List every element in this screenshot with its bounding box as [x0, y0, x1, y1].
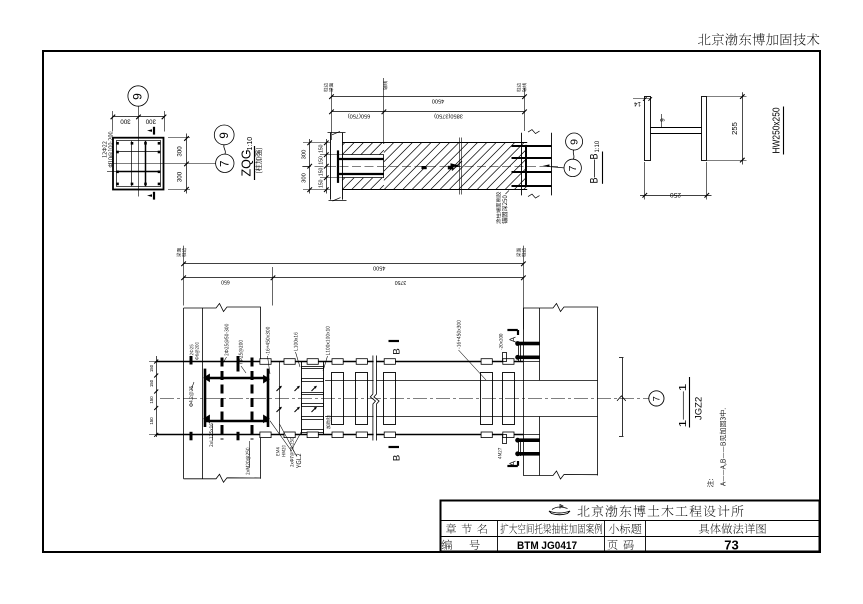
svg-text:A: A — [508, 336, 518, 342]
svg-text:ZQG: ZQG — [240, 149, 254, 176]
svg-text:300: 300 — [177, 146, 184, 157]
svg-text:1:10: 1:10 — [595, 140, 601, 152]
svg-text:250: 250 — [670, 191, 681, 198]
svg-text:9: 9 — [131, 93, 145, 100]
svg-text:9: 9 — [660, 118, 667, 122]
svg-text:1:10: 1:10 — [247, 137, 254, 151]
svg-text:150: 150 — [149, 417, 154, 425]
svg-text:300: 300 — [302, 150, 308, 160]
svg-text:300: 300 — [302, 173, 308, 183]
svg-text:7: 7 — [651, 396, 662, 401]
svg-text:300: 300 — [177, 171, 184, 182]
svg-text:9: 9 — [219, 132, 231, 138]
svg-text:73: 73 — [724, 538, 738, 553]
svg-text:150: 150 — [149, 396, 154, 404]
svg-text:B: B — [391, 455, 402, 461]
svg-text:BTM JG0417: BTM JG0417 — [517, 540, 577, 552]
svg-text:150: 150 — [318, 168, 324, 177]
svg-text:300: 300 — [120, 118, 131, 125]
svg-text:B: B — [391, 348, 402, 354]
svg-text:150: 150 — [318, 179, 324, 188]
svg-text:4500: 4500 — [432, 97, 444, 103]
svg-text:9: 9 — [568, 139, 580, 145]
svg-text:150: 150 — [318, 144, 324, 153]
svg-text:1——1: 1——1 — [677, 383, 689, 427]
svg-text:4500: 4500 — [373, 265, 385, 271]
svg-text:14: 14 — [634, 100, 641, 107]
svg-text:255: 255 — [730, 122, 739, 135]
svg-text:7: 7 — [567, 165, 579, 171]
svg-text:150: 150 — [149, 379, 154, 387]
svg-text:150: 150 — [318, 156, 324, 165]
svg-text:HW250x250: HW250x250 — [772, 107, 783, 153]
svg-text:300: 300 — [145, 118, 156, 125]
svg-text:JGZ2: JGZ2 — [694, 397, 705, 420]
svg-text:7: 7 — [219, 161, 231, 167]
svg-text:3850(3750): 3850(3750) — [434, 112, 463, 118]
svg-text:A: A — [508, 460, 518, 466]
svg-text:3750: 3750 — [395, 279, 407, 285]
svg-text:650(750): 650(750) — [348, 112, 371, 118]
svg-text:650: 650 — [221, 278, 230, 284]
svg-text:150: 150 — [149, 364, 154, 372]
svg-text:B——B: B——B — [589, 154, 601, 184]
